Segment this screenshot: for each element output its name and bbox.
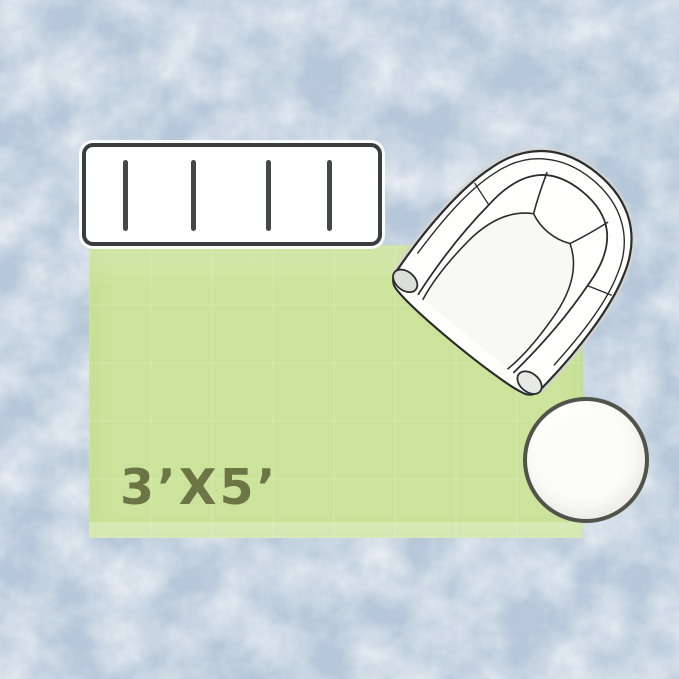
round-side-table-top-view-icon <box>523 397 649 523</box>
rug-size-label: 3’X5’ <box>120 463 278 512</box>
console-slat-line <box>327 160 332 231</box>
armchair-top-view-icon <box>350 120 670 440</box>
console-table-top-view-icon <box>82 143 382 246</box>
rug-edge-highlight <box>89 522 583 538</box>
console-slat-line <box>266 160 271 231</box>
console-slat-line <box>123 160 128 231</box>
rug-size-guide-illustration: 3’X5’ <box>0 0 679 679</box>
console-slat-line <box>191 160 196 231</box>
